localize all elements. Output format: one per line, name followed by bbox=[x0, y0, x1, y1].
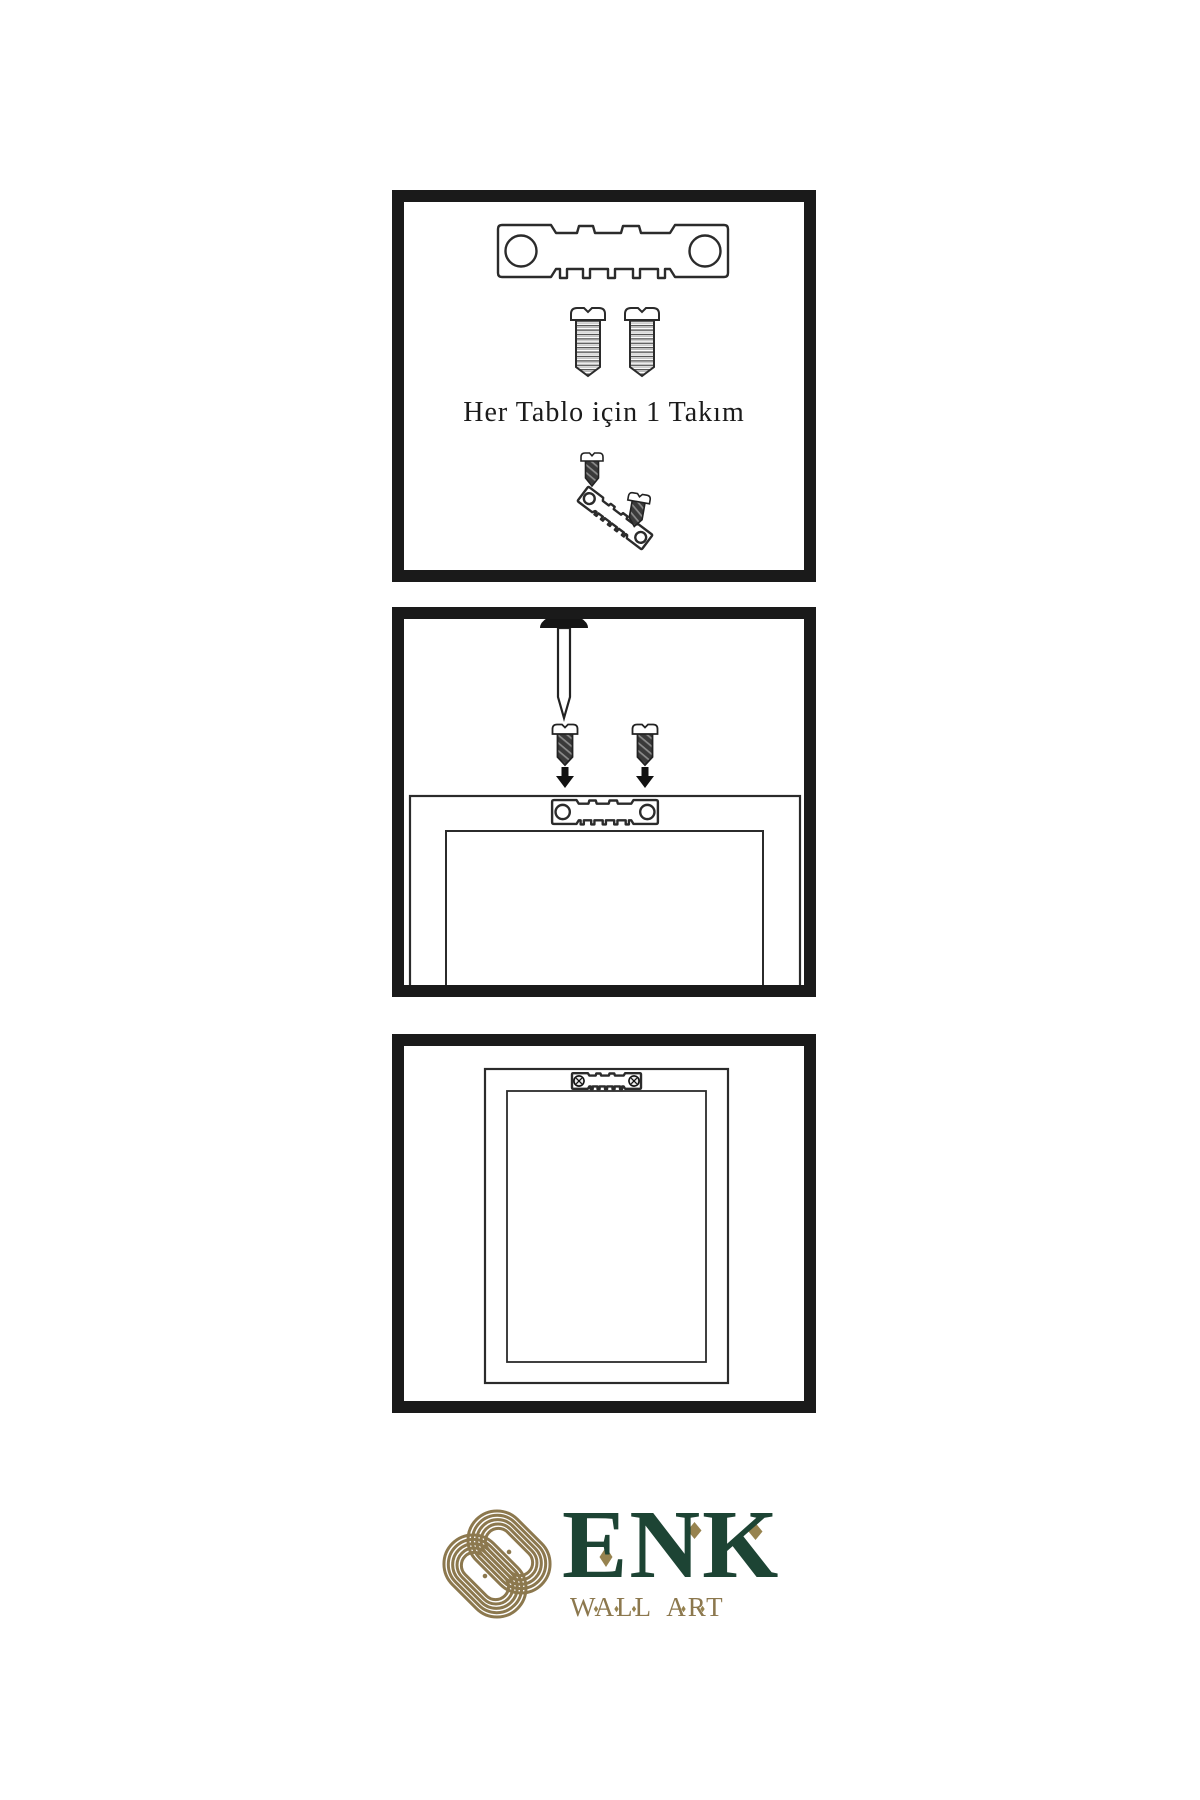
frame-back bbox=[410, 796, 800, 1051]
screw-icon bbox=[625, 308, 659, 376]
sawtooth-hanger-icon bbox=[498, 225, 728, 278]
screw-icon bbox=[581, 453, 603, 486]
picture-frame-inner bbox=[507, 1091, 706, 1362]
logo-brand-text: ENK bbox=[562, 1496, 780, 1594]
phillips-screw-icon bbox=[629, 1076, 639, 1086]
down-arrow-icon bbox=[636, 767, 654, 788]
nail-icon bbox=[540, 614, 588, 718]
panel1-caption: Her Tablo için 1 Takım bbox=[392, 397, 816, 429]
screw-into-hanger-detail bbox=[577, 453, 652, 550]
panel-2-mounting-step bbox=[398, 613, 810, 1051]
sawtooth-hanger-icon bbox=[552, 800, 658, 824]
panel-1-hardware-kit bbox=[398, 196, 810, 576]
phillips-screw-icon bbox=[574, 1076, 584, 1086]
panel-3-hung-frame bbox=[398, 1040, 810, 1407]
screw-icon bbox=[571, 308, 605, 376]
screw-icon bbox=[633, 725, 658, 766]
logo-subtitle-text: WALL ART bbox=[570, 1592, 725, 1623]
screw-icon bbox=[553, 725, 578, 766]
down-arrow-icon bbox=[556, 767, 574, 788]
knot-logo-icon bbox=[432, 1499, 562, 1629]
instruction-sheet: Her Tablo için 1 Takım ENK WALL ART bbox=[0, 0, 1200, 1800]
